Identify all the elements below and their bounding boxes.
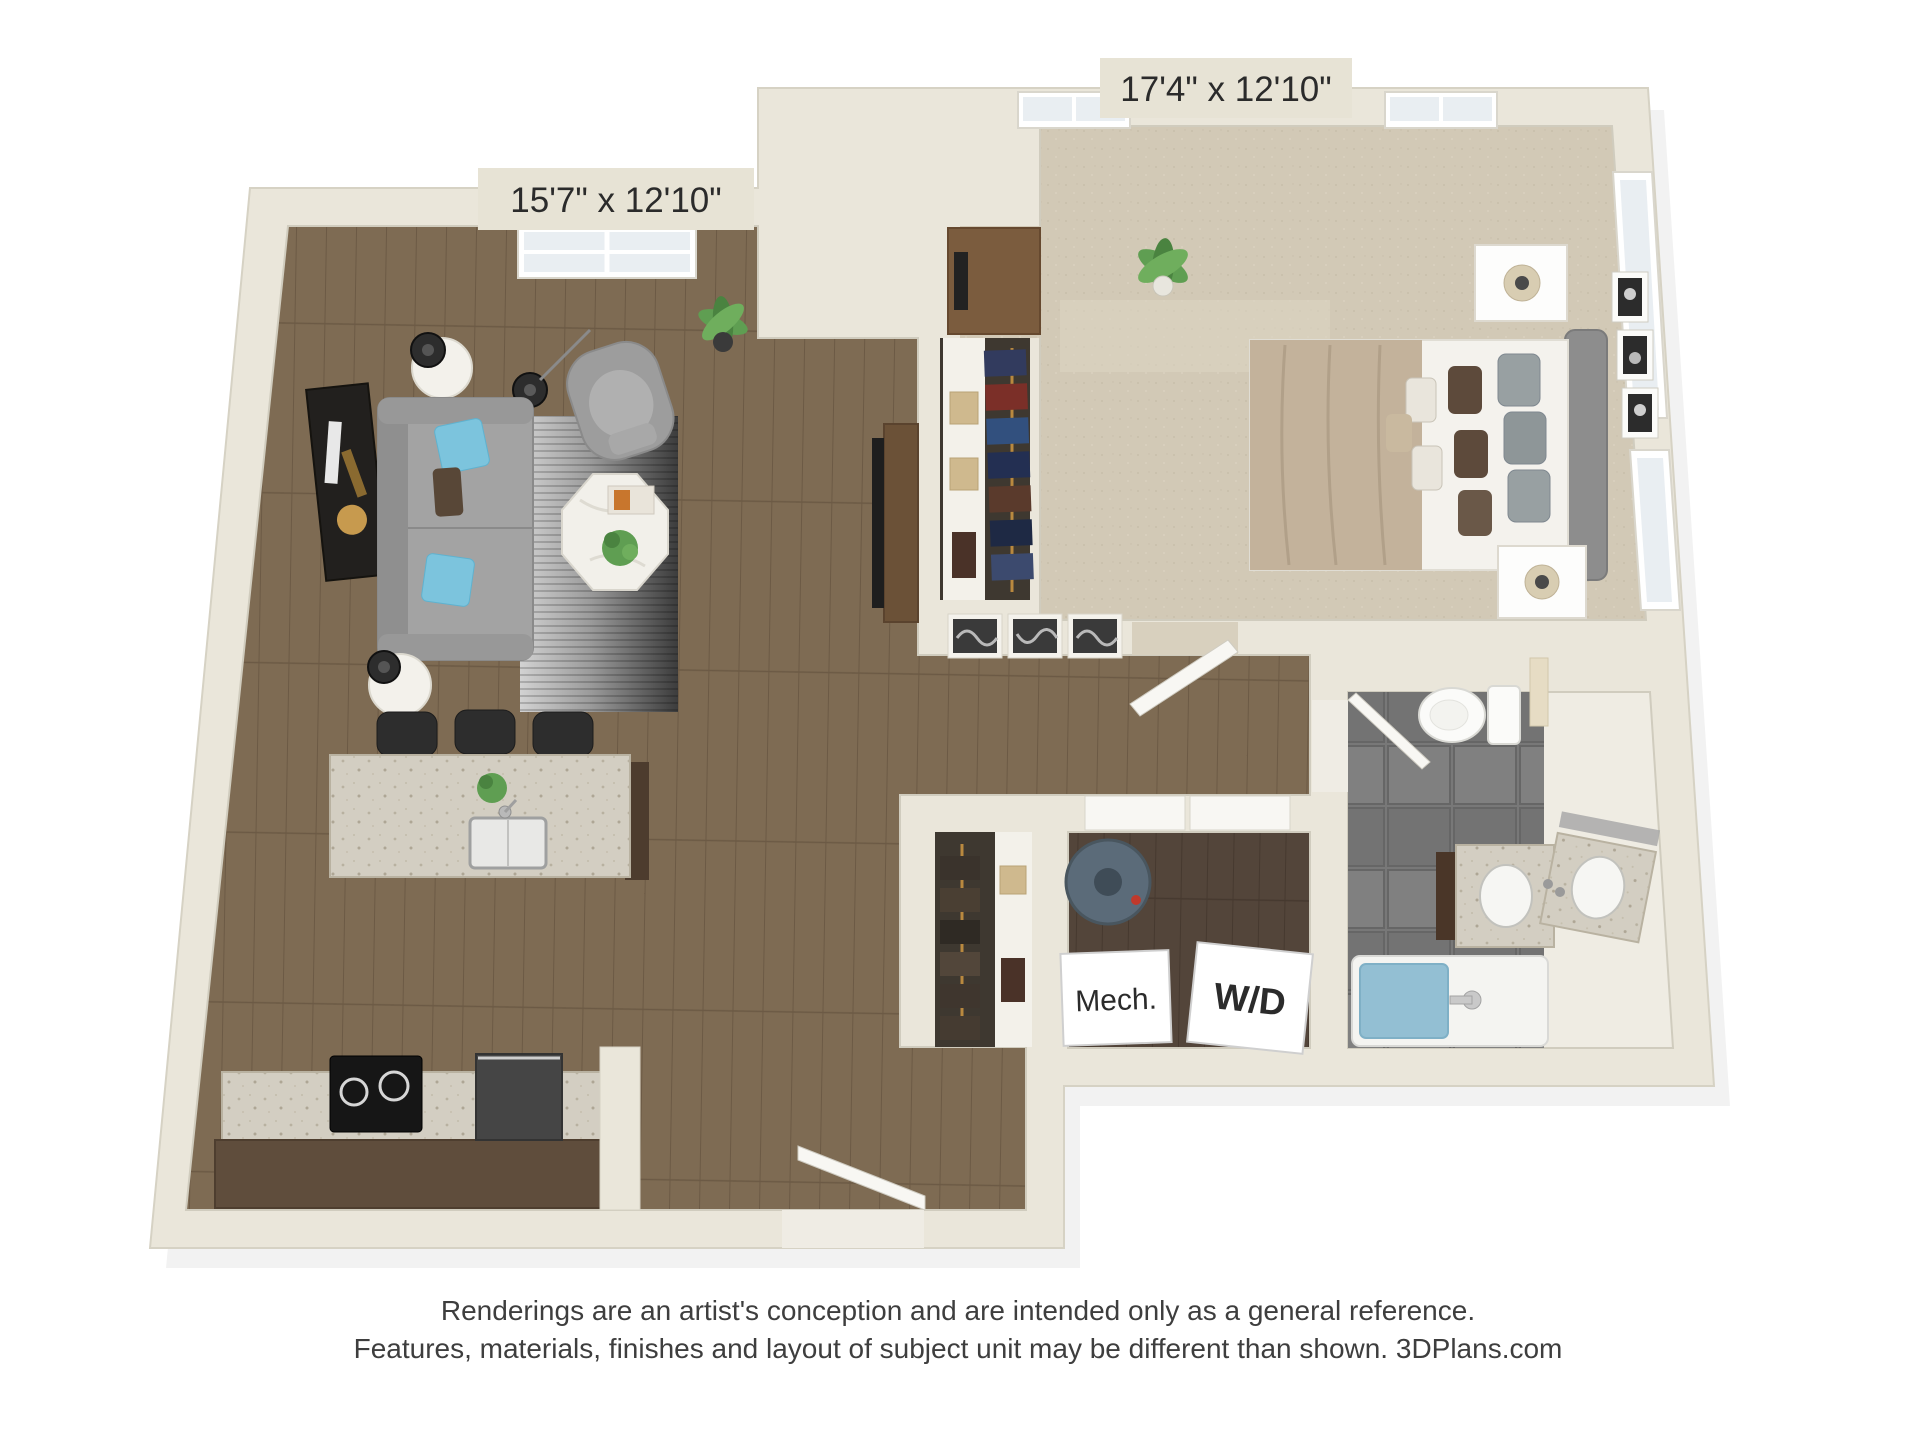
disclaimer-line-2: Features, materials, finishes and layout… [354,1333,1563,1364]
bedroom-dimension-tag: 17'4" x 12'10" [1100,58,1352,118]
kitchen-counter-run [215,1054,604,1208]
footer-disclaimer: Renderings are an artist's conception an… [354,1295,1563,1364]
duvet [1250,340,1422,570]
storage-box [950,392,978,424]
closet-shelf [995,832,1032,1047]
bathroom-door-opening [1312,700,1348,792]
bedroom-closet [940,338,1034,600]
bathtub [1352,956,1548,1046]
kitchen-island [330,755,649,880]
closet-door [1085,796,1185,830]
tv-console [872,424,918,622]
living-dimension-label: 15'7" x 12'10" [510,181,721,220]
refrigerator [476,1054,562,1140]
bag [952,532,976,578]
bar-stools [377,710,593,756]
monitor [954,252,968,310]
faucet [1543,879,1553,889]
mechanical-room: Mech. W/D [1060,796,1312,1054]
floor-plan-page: Mech. W/D [0,0,1920,1440]
washer-dryer-label: W/D [1212,975,1288,1023]
tv [872,438,884,608]
lumbar-pillow [432,467,463,517]
vanity-cabinet [1436,852,1456,940]
living-window [518,226,696,278]
entry-door-opening [782,1210,924,1248]
mech-label: Mech. [1075,983,1158,1019]
faucet [1555,887,1565,897]
disclaimer-line-1: Renderings are an artist's conception an… [441,1295,1475,1326]
floor-plan-rendering: Mech. W/D [0,0,1920,1440]
headboard [1565,330,1607,580]
desk [948,228,1040,334]
range [330,1056,422,1132]
hallway-art [948,614,1122,658]
bag [1001,958,1025,1002]
bathroom [1312,658,1673,1048]
lower-cabinets [215,1140,604,1208]
towel-rack [1530,658,1548,726]
closet-door [1190,796,1290,830]
bed [1250,330,1607,580]
storage-box [950,458,978,490]
bedroom-window-top-2 [1385,92,1497,128]
water-heater [1066,840,1150,924]
kitchen-partition-wall [600,1047,640,1210]
nightstand-bottom [1498,546,1586,618]
washer-dryer-box: W/D [1187,942,1313,1054]
nightstand-top [1475,245,1567,321]
toilet [1419,686,1520,744]
accent-pillow [434,418,491,475]
hall-closet [935,832,1032,1047]
accent-pillow [421,553,475,607]
sink [1480,865,1532,927]
bedroom-dimension-label: 17'4" x 12'10" [1120,70,1331,109]
mech-label-box: Mech. [1060,950,1171,1046]
sofa [378,398,533,660]
storage-box [1000,866,1026,894]
coffee-table [562,474,668,590]
living-dimension-tag: 15'7" x 12'10" [478,168,754,230]
tub-water [1360,964,1448,1038]
